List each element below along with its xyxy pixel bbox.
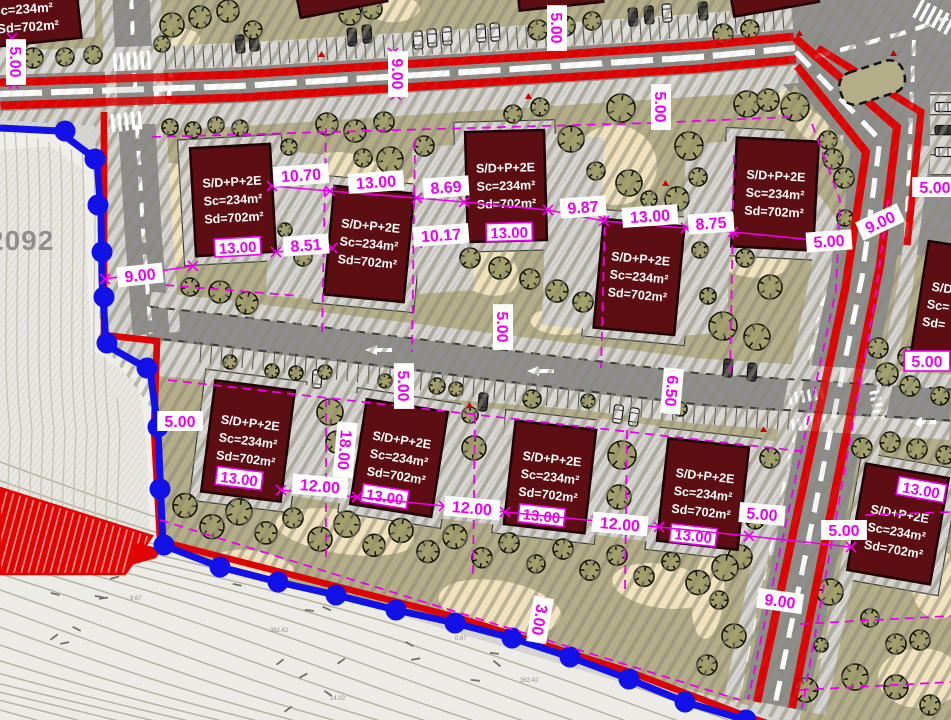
svg-text:5.00: 5.00	[828, 523, 859, 540]
svg-text:12.00: 12.00	[451, 499, 492, 519]
svg-text:0.67: 0.67	[455, 636, 467, 642]
svg-text:5.00: 5.00	[394, 370, 411, 401]
svg-text:13.00: 13.00	[356, 173, 397, 193]
svg-text:5.00: 5.00	[746, 505, 779, 525]
svg-text:8.69: 8.69	[430, 179, 462, 198]
svg-text:6.50: 6.50	[661, 375, 681, 408]
svg-text:5.00: 5.00	[651, 91, 668, 122]
svg-text:13.00: 13.00	[218, 239, 256, 258]
svg-text:13.00: 13.00	[630, 207, 671, 227]
svg-text:5.00: 5.00	[6, 46, 23, 77]
svg-text:Sc=234m²: Sc=234m²	[476, 178, 535, 194]
svg-text:9.00: 9.00	[388, 58, 405, 89]
svg-text:9.67: 9.67	[130, 596, 142, 602]
svg-text:10.17: 10.17	[421, 226, 462, 246]
svg-text:12.00: 12.00	[299, 477, 340, 497]
svg-text:5.00: 5.00	[547, 12, 564, 43]
svg-text:8.51: 8.51	[290, 237, 322, 256]
svg-text:8.75: 8.75	[695, 215, 727, 234]
svg-text:18.00: 18.00	[333, 429, 353, 470]
svg-text:5.00: 5.00	[164, 414, 195, 431]
svg-text:362.42: 362.42	[520, 678, 539, 684]
svg-text:5.00: 5.00	[493, 311, 510, 342]
svg-text:5.00: 5.00	[813, 233, 845, 252]
svg-text:5.00: 5.00	[919, 180, 950, 197]
svg-text:13.00: 13.00	[490, 224, 528, 242]
svg-text:9.00: 9.00	[124, 266, 157, 286]
svg-text:S/D+P+2E: S/D+P+2E	[476, 160, 535, 176]
svg-text:362.42: 362.42	[270, 628, 289, 634]
svg-text:10.70: 10.70	[281, 166, 322, 186]
svg-text:9.87: 9.87	[567, 199, 599, 218]
svg-text:14.02: 14.02	[330, 696, 346, 702]
svg-text:2092: 2092	[0, 225, 54, 256]
svg-text:5.00: 5.00	[911, 354, 942, 371]
svg-text:12.00: 12.00	[599, 515, 640, 535]
